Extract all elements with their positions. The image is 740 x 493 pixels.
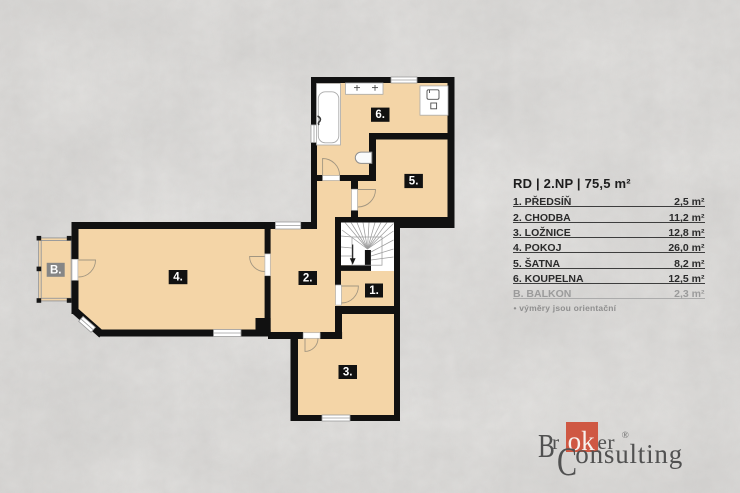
svg-text:2.: 2. (303, 273, 313, 285)
svg-text:6.: 6. (375, 109, 385, 121)
svg-text:5.: 5. (409, 176, 419, 188)
svg-text:3.: 3. (343, 367, 353, 379)
svg-text:B.: B. (50, 264, 62, 276)
svg-text:1.: 1. (369, 285, 379, 297)
svg-text:4.: 4. (173, 272, 183, 284)
